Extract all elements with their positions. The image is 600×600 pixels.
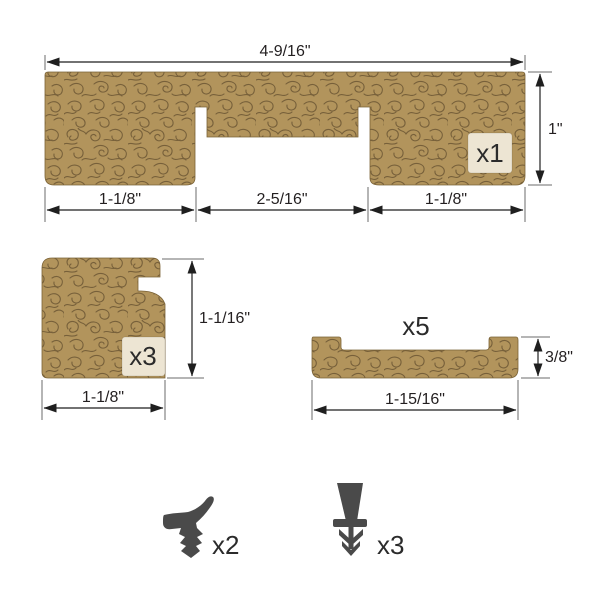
- diagram-canvas: x1 4-9/16" 1" 1-1/8" 2-5/16" 1-1/8": [0, 0, 600, 600]
- dimension-label: 4-9/16": [259, 43, 310, 60]
- dimension-label: 1": [548, 121, 563, 138]
- dimension-label: 3/8": [545, 349, 573, 366]
- dimension-label: 1-1/8": [82, 389, 124, 406]
- count-label: x2: [212, 530, 239, 560]
- dim-corner-height: 1-1/16": [162, 259, 250, 378]
- dim-flat-width: 1-15/16": [312, 380, 518, 420]
- flat-profile-drawing: x5 3/8" 1-15/16": [312, 311, 573, 420]
- head-profile-cross-section: [45, 72, 525, 185]
- count-label: x5: [402, 311, 429, 341]
- dim-flat-height: 3/8": [521, 337, 573, 378]
- count-label: x1: [476, 138, 503, 168]
- barbed-wedge-seal-icon: [333, 483, 367, 556]
- count-label: x3: [377, 530, 404, 560]
- dimension-label: 1-1/8": [99, 191, 141, 208]
- dimension-label: 1-1/16": [199, 310, 250, 327]
- dimension-label: 2-5/16": [256, 191, 307, 208]
- dim-corner-width: 1-1/8": [42, 380, 165, 420]
- barbed-seal-item: x3: [333, 483, 404, 560]
- dim-head-bottom-segments: 1-1/8" 2-5/16" 1-1/8": [45, 187, 525, 222]
- flat-profile-cross-section: [312, 337, 518, 378]
- count-label: x3: [129, 341, 156, 371]
- profile-diagram: x1 4-9/16" 1" 1-1/8" 2-5/16" 1-1/8": [0, 0, 600, 600]
- head-profile-drawing: x1 4-9/16" 1" 1-1/8" 2-5/16" 1-1/8": [45, 43, 563, 222]
- hook-seal-item: x2: [163, 496, 239, 560]
- dimension-label: 1-1/8": [425, 191, 467, 208]
- dim-head-height: 1": [528, 72, 563, 185]
- kerf-hook-seal-icon: [163, 496, 214, 558]
- dim-head-width: 4-9/16": [45, 43, 525, 70]
- corner-profile-drawing: x3 1-1/16" 1-1/8": [42, 258, 250, 420]
- dimension-label: 1-15/16": [385, 391, 445, 408]
